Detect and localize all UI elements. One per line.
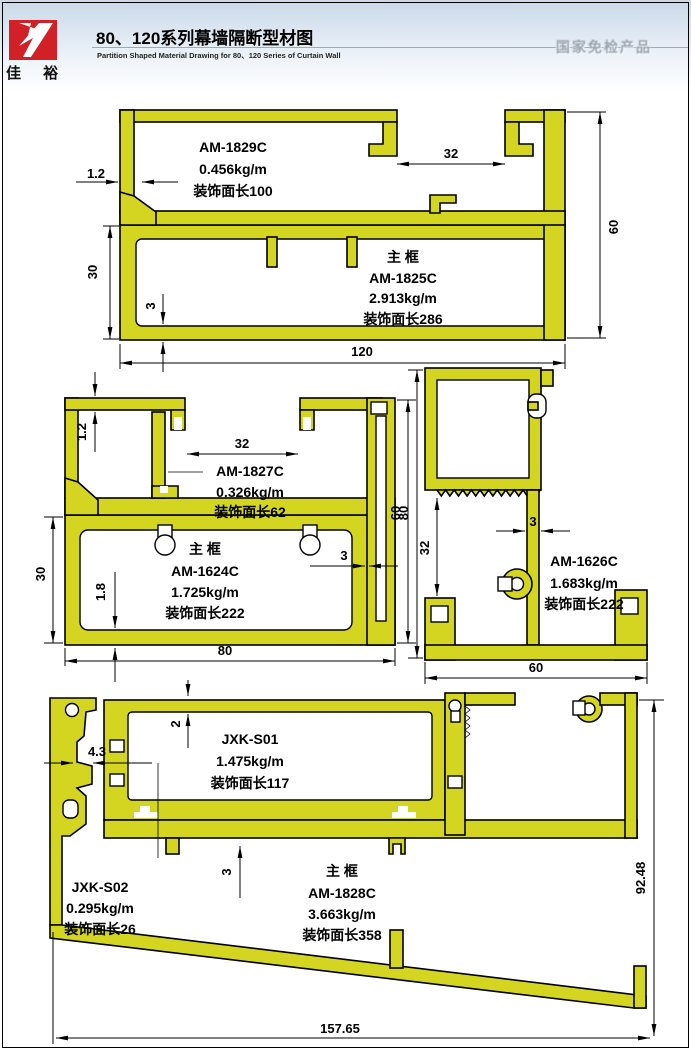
dim-p1-wall: 1.2 <box>87 166 105 181</box>
dim-p1-height: 60 <box>606 220 621 234</box>
p3-weight: 1.683kg/m <box>550 575 618 591</box>
technical-drawing: 1.2 32 60 30 3 120 AM-1829C 0.456kg/m 装饰… <box>0 0 691 1061</box>
dim-p4-width: 157.65 <box>320 1021 360 1036</box>
drawing-sheet: 佳 裕 80、120系列幕墙隔断型材图 Partition Shaped Mat… <box>0 0 691 1061</box>
dim-p2-width: 80 <box>218 643 232 658</box>
dim-p4-bottom: 3 <box>219 868 234 875</box>
p1-insert-face: 装饰面长100 <box>192 183 273 199</box>
profile-am1828c-section: 2 4.3 3 92.48 157.65 JXK-S01 1.475kg/m 装… <box>44 680 664 1044</box>
p1-main-weight: 2.913kg/m <box>369 290 437 306</box>
dim-p2-wall: 1.2 <box>74 423 89 441</box>
p2-insert-model: AM-1827C <box>216 463 284 479</box>
p4-side-face: 装饰面长26 <box>63 921 136 937</box>
profile-am1626c-section: 80 32 3 60 AM-1626C 1.683kg/m 装饰面长222 <box>396 368 647 684</box>
p1-main-role: 主 框 <box>387 249 419 265</box>
p2-insert-face: 装饰面长62 <box>213 504 286 520</box>
p2-main-model: AM-1624C <box>171 563 239 579</box>
p4-side-model: JXK-S02 <box>72 879 129 895</box>
p3-model: AM-1626C <box>550 553 618 569</box>
dim-p1-slot: 32 <box>444 146 458 161</box>
dim-p2-side: 3 <box>340 548 347 563</box>
dim-p1-bottom: 3 <box>143 302 158 309</box>
p4-side-weight: 0.295kg/m <box>66 900 134 916</box>
dim-p2-bottom: 1.8 <box>93 583 108 601</box>
p1-main-model: AM-1825C <box>369 270 437 286</box>
dim-p3-width: 60 <box>529 660 543 675</box>
p4-insert-face: 装饰面长117 <box>210 775 290 791</box>
p4-main-face: 装饰面长358 <box>301 927 382 943</box>
dim-p3-height: 80 <box>396 506 411 520</box>
dim-p1-width: 120 <box>351 344 373 359</box>
p4-insert-weight: 1.475kg/m <box>216 753 284 769</box>
p4-main-weight: 3.663kg/m <box>308 906 376 922</box>
p1-main-face: 装饰面长286 <box>362 311 443 327</box>
profile-am1825c-section: 1.2 32 60 30 3 120 AM-1829C 0.456kg/m 装饰… <box>76 110 621 372</box>
p3-face: 装饰面长222 <box>543 596 624 612</box>
p4-insert-model: JXK-S01 <box>222 731 279 747</box>
p1-insert-weight: 0.456kg/m <box>199 161 267 177</box>
dim-p4-side: 4.3 <box>88 744 106 759</box>
dim-p2-slot: 32 <box>235 436 249 451</box>
p4-main-role: 主 框 <box>326 863 358 879</box>
p2-main-role: 主 框 <box>189 541 221 557</box>
dim-p3-stem: 3 <box>529 514 536 529</box>
p2-insert-weight: 0.326kg/m <box>216 484 284 500</box>
p2-main-weight: 1.725kg/m <box>171 584 239 600</box>
dim-p1-box: 30 <box>85 265 100 279</box>
p2-main-face: 装饰面长222 <box>164 605 245 621</box>
p1-insert-model: AM-1829C <box>199 139 267 155</box>
dim-p3-inner: 32 <box>417 541 432 555</box>
profile-am1624c-section: 1.2 32 60 30 1.8 3 80 AM-1827C 0.326kg/m… <box>33 372 416 682</box>
dim-p2-box: 30 <box>33 567 48 581</box>
dim-p4-height: 92.48 <box>633 862 648 895</box>
p4-main-model: AM-1828C <box>308 885 376 901</box>
dim-p4-wall: 2 <box>168 720 183 727</box>
